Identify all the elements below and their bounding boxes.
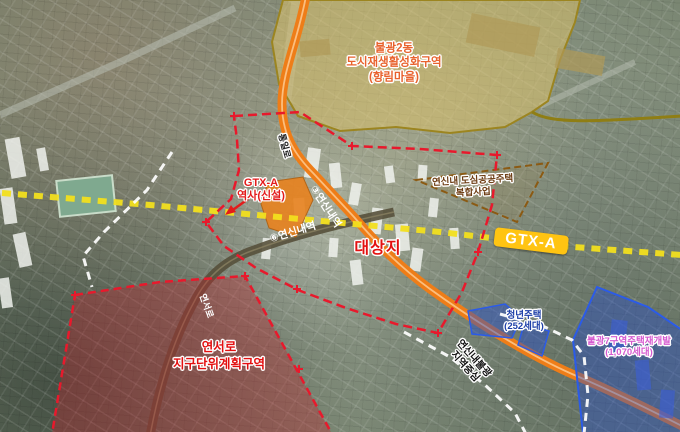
gtx-station-line2: 역사(신설) — [237, 190, 285, 203]
minor-road — [0, 8, 235, 115]
district-center-boundary — [83, 152, 172, 287]
target-site-label: 대상지 — [354, 239, 401, 259]
regeneration-zone-line3: (향림마을) — [346, 70, 441, 84]
redevelopment-zone-label: 불광7구역주택재개발 (1,070세대) — [587, 337, 671, 359]
district-plan-line2: 지구단위계획구역 — [173, 356, 265, 373]
public-housing-project-label: 연신내 도심공공주택 복합사업 — [432, 173, 514, 201]
district-unit-plan-zone-label: 연서로 지구단위계획구역 — [173, 339, 265, 373]
district-plan-line1: 연서로 — [173, 339, 265, 356]
regeneration-zone-label: 불광2동 도시재생활성화구역 (향림마을) — [346, 41, 441, 84]
redevelopment-line2: (1,070세대) — [587, 348, 671, 359]
aerial-planning-map: 불광2동 도시재생활성화구역 (향림마을) GTX-A 역사(신설) ③연신내역… — [0, 0, 680, 432]
regeneration-zone-line2: 도시재생활성화구역 — [346, 56, 441, 70]
youth-housing-line2: (252세대) — [504, 322, 544, 333]
temple-compound — [56, 175, 115, 217]
olive-road-line — [532, 112, 680, 121]
gtx-station-label: GTX-A 역사(신설) — [237, 177, 285, 203]
youth-housing-label: 청년주택 (252세대) — [504, 311, 544, 333]
gtx-station-line1: GTX-A — [237, 177, 285, 190]
map-annotation-layer — [0, 0, 680, 432]
regeneration-zone-line1: 불광2동 — [346, 41, 441, 55]
